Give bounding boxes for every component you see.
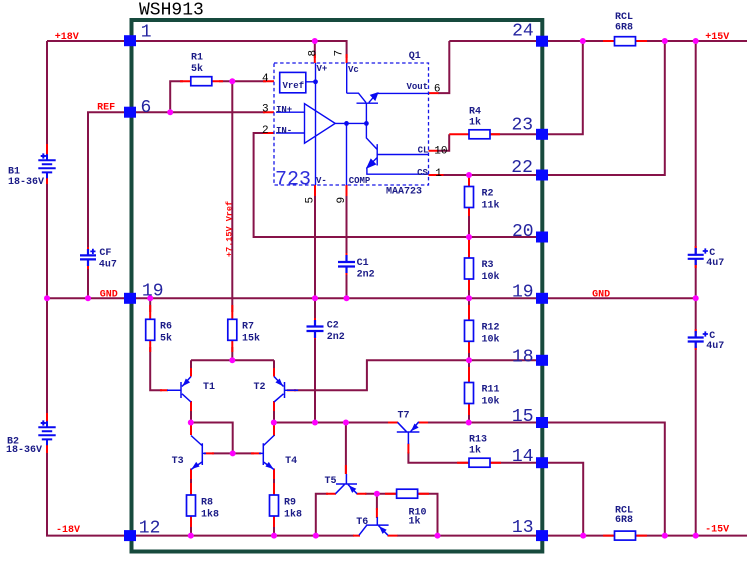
- svg-text:IN-: IN-: [276, 126, 292, 136]
- svg-text:3: 3: [262, 104, 269, 116]
- svg-text:IN+: IN+: [276, 105, 292, 115]
- svg-text:13: 13: [512, 518, 534, 538]
- svg-text:12: 12: [139, 518, 161, 538]
- svg-text:R6: R6: [160, 322, 172, 333]
- svg-text:23: 23: [512, 116, 534, 136]
- svg-text:24: 24: [512, 22, 534, 42]
- svg-text:6: 6: [434, 84, 441, 96]
- svg-text:V-: V-: [316, 176, 327, 186]
- svg-text:COMP: COMP: [349, 176, 371, 186]
- svg-text:R4: R4: [469, 107, 481, 118]
- svg-text:18-36V: 18-36V: [6, 445, 42, 456]
- svg-text:R13: R13: [469, 435, 487, 446]
- svg-text:723: 723: [275, 168, 311, 191]
- svg-text:B1: B1: [8, 167, 20, 178]
- svg-text:1k: 1k: [469, 117, 481, 129]
- svg-text:4u7: 4u7: [706, 258, 724, 269]
- svg-text:CF: CF: [99, 248, 111, 259]
- svg-text:CL: CL: [418, 146, 429, 156]
- svg-text:10k: 10k: [482, 396, 500, 408]
- svg-text:2n2: 2n2: [327, 332, 345, 343]
- svg-text:R8: R8: [201, 498, 213, 509]
- svg-text:R11: R11: [482, 385, 500, 396]
- svg-text:R9: R9: [284, 498, 296, 509]
- svg-text:18-36V: 18-36V: [8, 177, 44, 188]
- svg-text:Q1: Q1: [409, 51, 421, 62]
- svg-text:7: 7: [333, 50, 345, 57]
- svg-text:10k: 10k: [482, 334, 500, 346]
- svg-text:10: 10: [434, 145, 447, 157]
- svg-text:REF: REF: [97, 102, 115, 113]
- svg-text:T6: T6: [356, 517, 368, 528]
- svg-text:T3: T3: [172, 456, 184, 467]
- svg-text:C2: C2: [327, 321, 339, 332]
- svg-text:8: 8: [307, 50, 319, 57]
- svg-text:6: 6: [141, 98, 152, 118]
- svg-text:T4: T4: [285, 456, 297, 467]
- svg-text:10k: 10k: [482, 271, 500, 283]
- svg-text:MAA723: MAA723: [386, 187, 422, 198]
- svg-text:5: 5: [304, 197, 316, 204]
- svg-text:Vout: Vout: [407, 82, 429, 92]
- svg-text:14: 14: [512, 447, 534, 467]
- svg-text:20: 20: [512, 222, 534, 242]
- svg-text:+15V: +15V: [705, 32, 729, 43]
- svg-text:R2: R2: [482, 189, 494, 200]
- svg-text:R7: R7: [242, 322, 254, 333]
- svg-text:6R8: 6R8: [615, 515, 633, 526]
- svg-text:1: 1: [435, 168, 442, 180]
- svg-text:5k: 5k: [191, 63, 203, 75]
- svg-text:4: 4: [262, 73, 269, 85]
- svg-text:1k8: 1k8: [201, 509, 219, 521]
- svg-text:GND: GND: [592, 290, 610, 301]
- svg-text:2n2: 2n2: [357, 270, 375, 281]
- svg-text:22: 22: [511, 158, 533, 178]
- svg-text:19: 19: [512, 283, 534, 303]
- svg-text:18: 18: [512, 347, 534, 367]
- svg-text:6R8: 6R8: [615, 23, 633, 34]
- svg-text:T2: T2: [254, 382, 266, 393]
- svg-text:+7.15V Vref: +7.15V Vref: [224, 201, 234, 257]
- svg-text:1k: 1k: [409, 516, 421, 528]
- svg-text:WSH913: WSH913: [139, 1, 204, 21]
- svg-text:V+: V+: [317, 64, 328, 74]
- svg-text:2: 2: [262, 125, 269, 137]
- svg-text:11k: 11k: [482, 200, 500, 212]
- svg-text:CS: CS: [417, 168, 428, 178]
- svg-text:4u7: 4u7: [706, 341, 724, 352]
- svg-text:+18V: +18V: [55, 32, 79, 43]
- svg-text:T5: T5: [325, 476, 337, 487]
- svg-text:R1: R1: [191, 53, 203, 64]
- svg-text:1k: 1k: [469, 445, 481, 457]
- svg-text:4u7: 4u7: [99, 260, 117, 271]
- svg-text:GND: GND: [100, 289, 118, 300]
- svg-text:T1: T1: [203, 382, 215, 393]
- svg-text:C1: C1: [357, 258, 369, 269]
- svg-text:-18V: -18V: [56, 525, 80, 536]
- svg-text:15: 15: [512, 407, 534, 427]
- svg-text:Vc: Vc: [348, 65, 359, 75]
- svg-text:-15V: -15V: [705, 525, 729, 536]
- svg-text:R3: R3: [482, 260, 494, 271]
- svg-text:15k: 15k: [242, 333, 260, 345]
- svg-text:9: 9: [336, 197, 348, 204]
- svg-text:R12: R12: [482, 323, 500, 334]
- svg-text:5k: 5k: [160, 333, 172, 345]
- svg-text:RCL: RCL: [615, 12, 633, 23]
- svg-text:Vref: Vref: [283, 81, 305, 91]
- svg-text:1k8: 1k8: [284, 509, 302, 521]
- svg-text:19: 19: [142, 281, 164, 301]
- svg-text:1: 1: [141, 23, 152, 43]
- svg-text:T7: T7: [398, 411, 410, 422]
